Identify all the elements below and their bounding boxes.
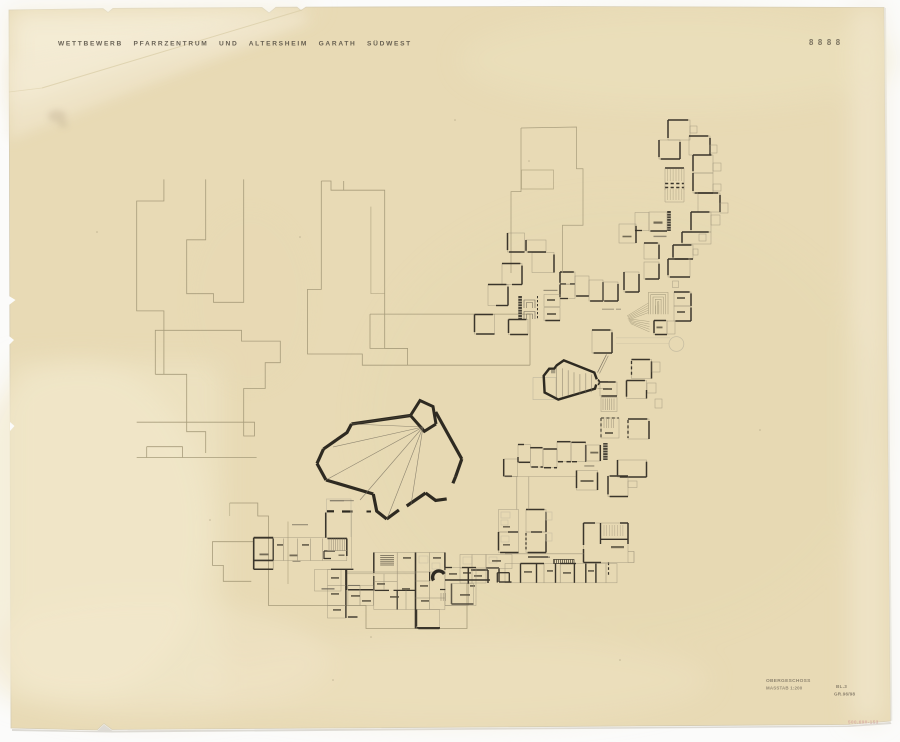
svg-text:500.690-153: 500.690-153	[848, 720, 879, 725]
svg-text:MASSTAB 1:200: MASSTAB 1:200	[766, 686, 803, 691]
svg-text:BL.3: BL.3	[836, 684, 847, 689]
svg-text:OBERGESCHOSS: OBERGESCHOSS	[766, 678, 811, 684]
svg-text:WETTBEWERB PFARRZENTRUM UND: WETTBEWERB PFARRZENTRUM UND ALTERSHEIM G…	[58, 39, 412, 48]
svg-text:8888: 8888	[809, 38, 845, 47]
svg-text:GR.96/98: GR.96/98	[834, 692, 856, 697]
